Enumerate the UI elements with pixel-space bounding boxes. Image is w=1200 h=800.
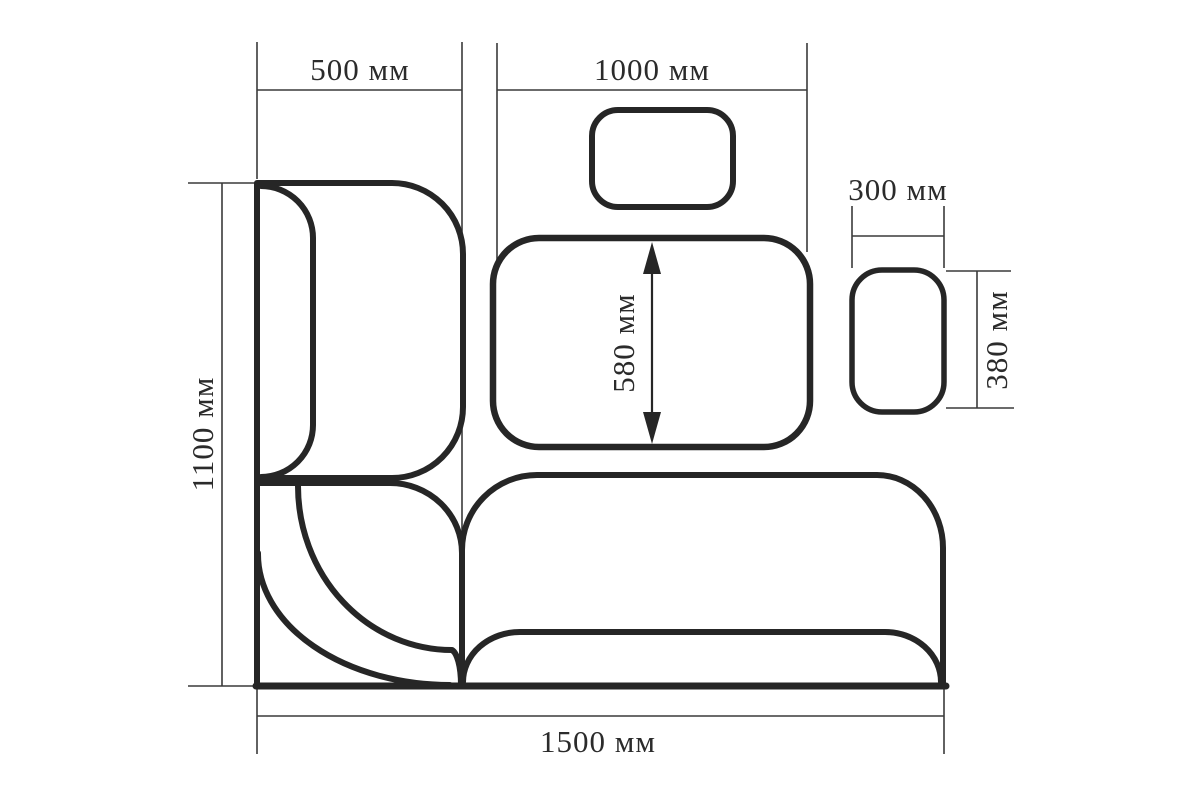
dim-label-1500mm: 1500 мм (540, 724, 656, 759)
right-section-cushion-line (463, 632, 941, 682)
dim-label-500mm: 500 мм (310, 52, 409, 87)
dimension-labels-layer: 500 мм 1000 мм 1100 мм 1500 мм 580 мм 30… (185, 52, 1014, 759)
dim-label-1000mm: 1000 мм (594, 52, 710, 87)
dim-label-380mm: 380 мм (979, 290, 1014, 389)
arrowhead-up-icon (643, 242, 661, 274)
drawing-stage: 500 мм 1000 мм 1100 мм 1500 мм 580 мм 30… (0, 0, 1200, 800)
dim-label-1100mm: 1100 мм (185, 377, 220, 492)
arrowhead-down-icon (643, 412, 661, 444)
furniture-outline-layer (256, 110, 946, 686)
headrest-cushion (592, 110, 733, 207)
side-module (852, 270, 944, 412)
left-section-cushion-line (261, 186, 313, 477)
corner-seat-front-edge-lower (258, 553, 450, 685)
left-section-outer-profile (257, 183, 463, 686)
technical-drawing-canvas: 500 мм 1000 мм 1100 мм 1500 мм 580 мм 30… (0, 0, 1200, 800)
dim-arrow-580 (643, 242, 661, 444)
dim-label-300mm: 300 мм (848, 172, 947, 207)
dim-label-580mm: 580 мм (606, 293, 641, 392)
right-section-outer-contour (462, 475, 943, 685)
corner-back-edge (259, 483, 462, 684)
